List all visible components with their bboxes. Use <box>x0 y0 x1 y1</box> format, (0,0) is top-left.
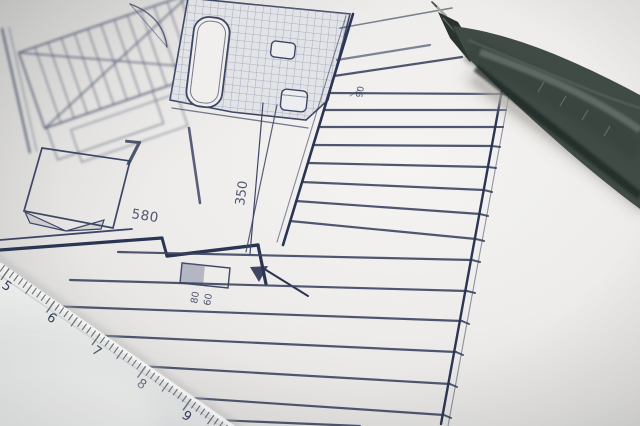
photo-floor-plan-scene: 7 580 350 80 60 90 5 6 7 8 9 <box>0 0 640 426</box>
vignette <box>0 0 640 426</box>
scene-canvas: 7 580 350 80 60 90 5 6 7 8 9 <box>0 0 640 426</box>
